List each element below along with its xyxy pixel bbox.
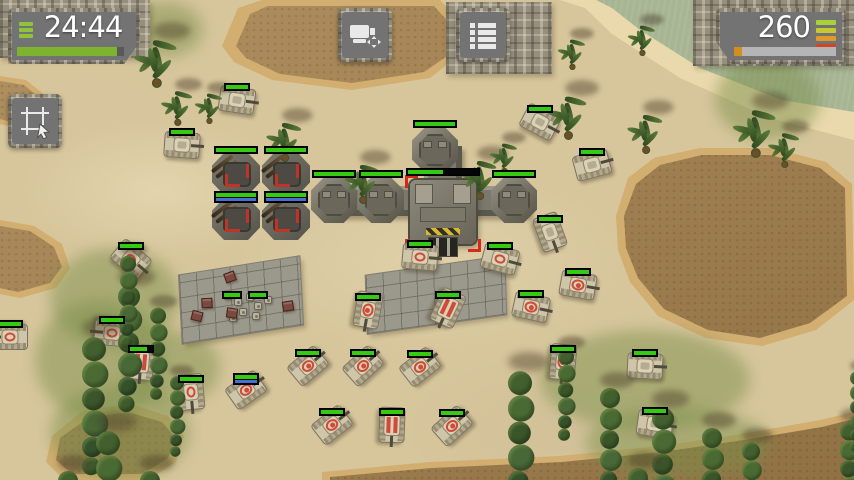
health-bar bbox=[642, 407, 668, 415]
foliage-blob bbox=[558, 365, 576, 383]
resource-progress-bar bbox=[734, 47, 836, 56]
health-bar bbox=[312, 170, 356, 178]
health-bar bbox=[0, 320, 23, 328]
roof-hatch bbox=[517, 191, 526, 198]
foliage-blob bbox=[82, 388, 105, 411]
roof-hatch bbox=[438, 141, 447, 148]
tree-shadow bbox=[643, 100, 674, 114]
tree-shadow bbox=[752, 92, 789, 110]
roof-hatch bbox=[369, 191, 378, 198]
timer-progress-bar bbox=[17, 47, 124, 56]
tank-turret bbox=[568, 276, 587, 294]
timer-panel: 24:44 bbox=[8, 8, 140, 64]
health-bar bbox=[295, 349, 321, 357]
health-bar bbox=[379, 408, 405, 416]
tank-turret bbox=[359, 300, 377, 319]
palm-crown bbox=[282, 155, 288, 161]
tree-shadow bbox=[640, 14, 664, 25]
camera-button[interactable] bbox=[338, 8, 392, 62]
turret-building[interactable] bbox=[212, 153, 260, 195]
foliage-blob bbox=[118, 396, 135, 413]
octagon-building[interactable] bbox=[412, 127, 458, 173]
foliage-blob bbox=[150, 324, 168, 342]
tree-shadow bbox=[652, 390, 689, 408]
infantry-unit[interactable] bbox=[234, 298, 242, 306]
tank-turret bbox=[173, 137, 191, 153]
list-icon bbox=[467, 21, 499, 49]
hazard-stripe bbox=[426, 228, 460, 235]
selection-button[interactable] bbox=[8, 94, 62, 148]
health-bar bbox=[527, 105, 553, 113]
foliage-blob bbox=[150, 374, 164, 388]
resources-panel: 260 bbox=[716, 8, 846, 64]
foliage-blob bbox=[96, 431, 120, 455]
foliage-blob bbox=[558, 398, 576, 416]
health-bar bbox=[537, 215, 563, 223]
health-bar bbox=[128, 345, 154, 353]
tree-shadow bbox=[702, 412, 736, 428]
palm-crown bbox=[565, 132, 572, 139]
roof-hatch bbox=[384, 191, 393, 198]
health-bar bbox=[264, 191, 308, 203]
selection-corner bbox=[468, 239, 481, 252]
health-bar bbox=[99, 316, 125, 324]
supply-crate bbox=[226, 307, 238, 318]
palm-crown bbox=[570, 64, 575, 69]
health-bar bbox=[407, 240, 433, 248]
health-bar bbox=[487, 242, 513, 250]
octagon-building[interactable] bbox=[491, 177, 537, 223]
tree-shadow bbox=[600, 372, 634, 388]
foliage-blob bbox=[150, 308, 166, 324]
selection-corner bbox=[405, 175, 418, 188]
tree-shadow bbox=[96, 412, 137, 431]
resource-meter-bar bbox=[816, 28, 836, 33]
palm-crown bbox=[640, 50, 645, 55]
palm-crown bbox=[477, 193, 483, 199]
tree-shadow bbox=[58, 455, 92, 471]
turret-red-stripe bbox=[225, 184, 240, 187]
health-bar bbox=[264, 146, 308, 154]
tank-turret bbox=[2, 330, 19, 345]
tank-barrel bbox=[654, 365, 667, 369]
platform-roof bbox=[498, 184, 530, 216]
palm-crown bbox=[207, 118, 212, 123]
foliage-blob bbox=[742, 460, 762, 480]
infantry-unit[interactable] bbox=[252, 312, 260, 320]
palm-crown bbox=[643, 147, 649, 153]
tree-shadow bbox=[628, 452, 662, 468]
foliage-blob bbox=[702, 448, 724, 470]
infantry-unit[interactable] bbox=[254, 302, 262, 310]
foliage-blob bbox=[170, 434, 182, 446]
foliage-blob bbox=[600, 449, 622, 471]
foliage-blob bbox=[600, 430, 619, 449]
tree-shadow bbox=[782, 120, 809, 133]
speed-bars-icon bbox=[19, 20, 34, 40]
foliage-blob bbox=[170, 390, 185, 405]
health-bar bbox=[632, 349, 658, 357]
tank-turret bbox=[383, 414, 401, 437]
health-bar bbox=[518, 290, 544, 298]
foliage-blob bbox=[170, 446, 181, 457]
tree-shadow bbox=[150, 295, 177, 308]
turret-building[interactable] bbox=[262, 198, 310, 240]
timer-value: 24:44 bbox=[34, 10, 132, 44]
game-viewport[interactable]: 24:44 bbox=[0, 0, 854, 480]
platform-roof bbox=[419, 134, 451, 166]
foliage-blob bbox=[702, 428, 722, 448]
orders-button[interactable] bbox=[456, 8, 510, 62]
roof-hatch bbox=[322, 191, 331, 198]
tank-turret bbox=[636, 358, 654, 374]
tree-shadow bbox=[508, 352, 549, 371]
foliage-blob bbox=[120, 322, 134, 336]
tank-turret bbox=[411, 249, 429, 265]
roof-hatch bbox=[423, 141, 432, 148]
turret-red-stripe bbox=[275, 229, 290, 232]
turret-red-stripe bbox=[296, 209, 299, 223]
foliage-blob bbox=[652, 430, 676, 454]
turret-building[interactable] bbox=[212, 198, 260, 240]
palm-crown bbox=[782, 162, 788, 168]
health-bar bbox=[224, 83, 250, 91]
foliage-blob bbox=[120, 256, 136, 272]
resource-meter-bar bbox=[816, 20, 836, 25]
roof-hatch bbox=[337, 191, 346, 198]
health-bar bbox=[233, 373, 259, 385]
foliage-blob bbox=[170, 406, 183, 419]
marquee-selection-icon bbox=[17, 103, 53, 139]
timer-panel-body: 24:44 bbox=[12, 12, 136, 60]
foliage-blob bbox=[82, 361, 108, 387]
health-bar bbox=[359, 170, 403, 178]
palm-crown bbox=[175, 120, 181, 126]
foliage-blob bbox=[508, 395, 534, 421]
palm-crown bbox=[360, 197, 366, 203]
health-bar bbox=[355, 293, 381, 301]
foliage-blob bbox=[118, 353, 142, 377]
health-bar bbox=[222, 291, 242, 299]
health-bar bbox=[439, 409, 465, 417]
health-bar bbox=[118, 242, 144, 250]
turret-red-stripe bbox=[246, 209, 249, 223]
tree-shadow bbox=[360, 150, 391, 164]
tree-shadow bbox=[502, 132, 526, 143]
foliage-blob bbox=[150, 388, 162, 400]
tank-turret bbox=[521, 298, 541, 316]
foliage-blob bbox=[170, 419, 185, 434]
palm-crown bbox=[153, 79, 161, 87]
resource-meter-bar bbox=[816, 36, 836, 41]
foliage-blob bbox=[120, 272, 138, 290]
palm-crown bbox=[752, 149, 760, 157]
hq-building[interactable] bbox=[410, 180, 476, 244]
health-bar bbox=[406, 168, 480, 176]
foliage-blob bbox=[508, 371, 532, 395]
supply-crate bbox=[201, 298, 213, 309]
health-bar bbox=[178, 375, 204, 383]
foliage-blob bbox=[850, 441, 854, 452]
tree-shadow bbox=[140, 455, 174, 471]
foliage-blob bbox=[508, 444, 534, 470]
octagon-building[interactable] bbox=[311, 177, 357, 223]
foliage-blob bbox=[82, 337, 106, 361]
tree-shadow bbox=[565, 80, 599, 96]
health-bar bbox=[214, 191, 258, 203]
foliage-blob bbox=[840, 460, 854, 477]
health-bar bbox=[169, 128, 195, 136]
roof-hatch bbox=[502, 191, 511, 198]
resources-panel-body: 260 bbox=[720, 12, 842, 60]
foliage-blob bbox=[150, 357, 168, 375]
health-bar bbox=[565, 268, 591, 276]
resource-amount: 260 bbox=[758, 10, 810, 44]
foliage-blob bbox=[600, 388, 620, 408]
platform-roof bbox=[318, 184, 350, 216]
tree-shadow bbox=[175, 78, 202, 91]
hq-deck bbox=[420, 207, 466, 222]
health-bar bbox=[435, 291, 461, 299]
health-bar bbox=[350, 349, 376, 357]
health-bar bbox=[579, 148, 605, 156]
foliage-blob bbox=[558, 415, 572, 429]
supply-crate bbox=[282, 300, 294, 312]
turret-red-stripe bbox=[246, 164, 249, 178]
foliage-blob bbox=[558, 429, 570, 441]
foliage-blob bbox=[96, 455, 122, 480]
tree-shadow bbox=[742, 428, 773, 442]
health-bar bbox=[492, 170, 536, 178]
foliage-blob bbox=[120, 289, 135, 304]
foliage-blob bbox=[558, 382, 573, 397]
turret-red-stripe bbox=[296, 164, 299, 178]
health-bar bbox=[413, 120, 457, 128]
turret-red-stripe bbox=[275, 184, 290, 187]
tree-shadow bbox=[282, 108, 313, 122]
foliage-blob bbox=[118, 377, 137, 396]
foliage-blob bbox=[600, 408, 622, 430]
health-bar bbox=[550, 345, 576, 353]
video-camera-icon bbox=[347, 20, 383, 50]
tree-shadow bbox=[153, 22, 190, 40]
turret-red-stripe bbox=[225, 229, 240, 232]
health-bar bbox=[214, 146, 258, 154]
foliage-blob bbox=[742, 442, 760, 460]
health-bar bbox=[319, 408, 345, 416]
foliage-blob bbox=[508, 422, 531, 445]
tank-turret bbox=[228, 91, 247, 108]
health-bar bbox=[248, 291, 268, 299]
infantry-unit[interactable] bbox=[239, 308, 247, 316]
health-bar bbox=[407, 350, 433, 358]
tree-shadow bbox=[570, 28, 594, 39]
